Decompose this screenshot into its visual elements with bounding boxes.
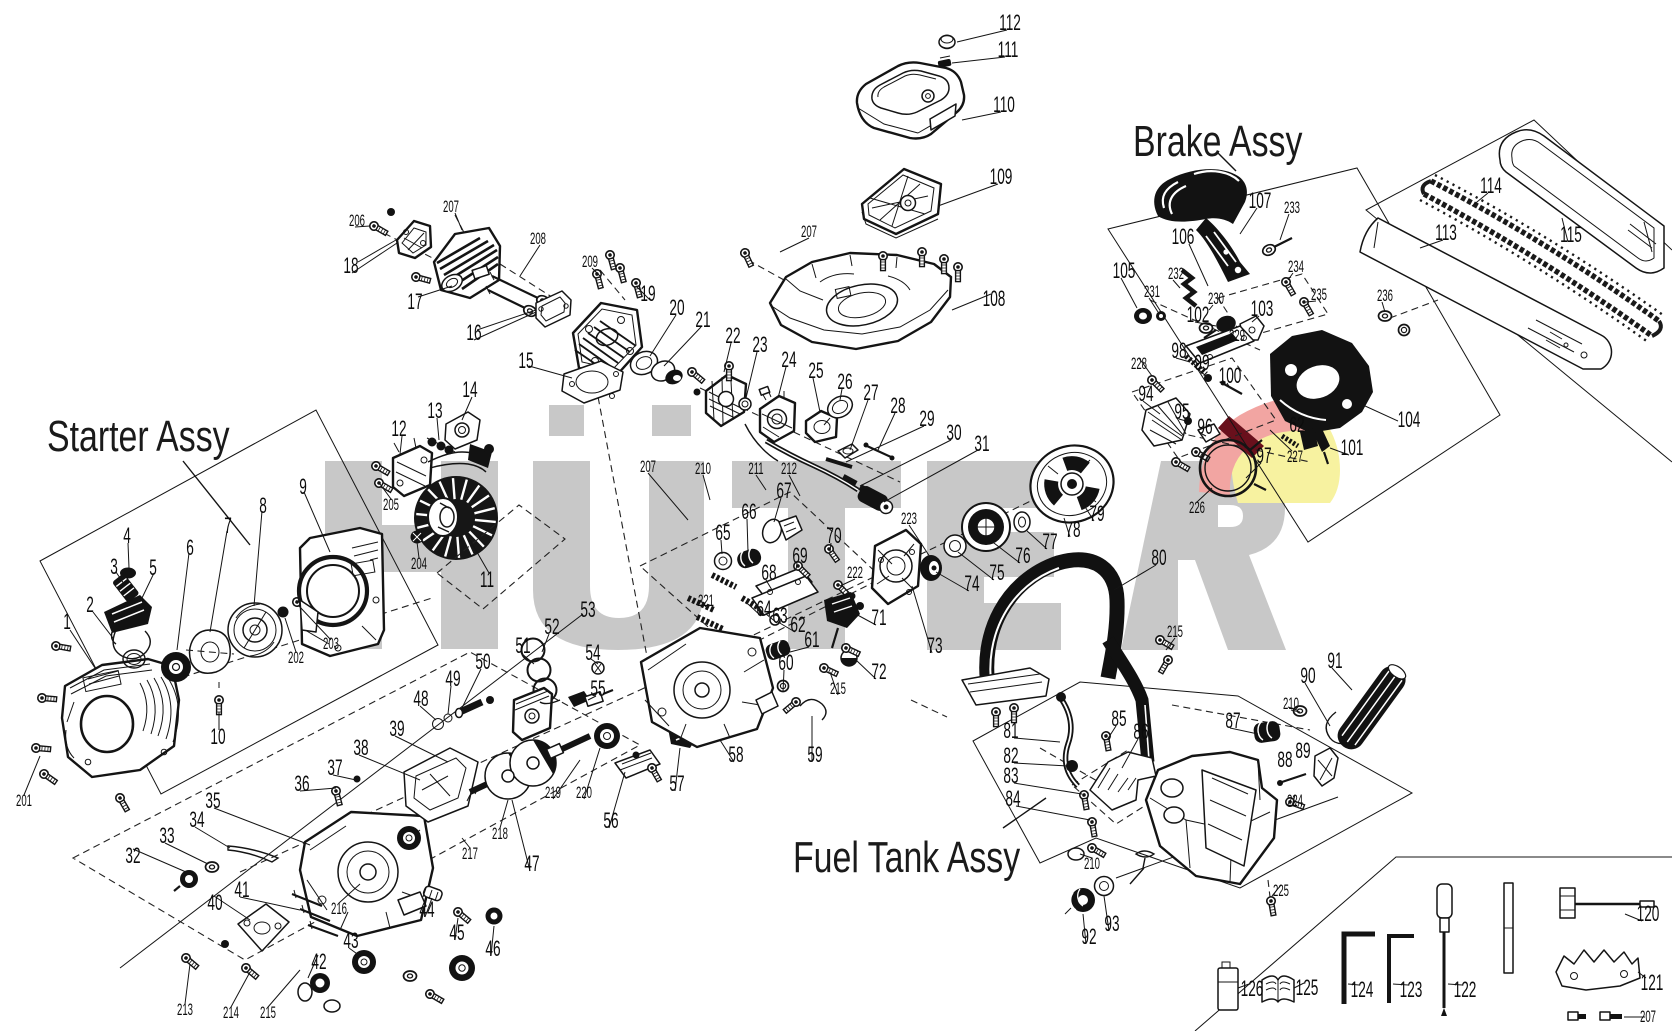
svg-text:23: 23 [752, 332, 767, 357]
svg-text:13: 13 [427, 398, 442, 423]
svg-text:75: 75 [989, 560, 1004, 585]
svg-text:91: 91 [1327, 648, 1342, 673]
svg-text:33: 33 [159, 823, 174, 848]
svg-text:10: 10 [210, 724, 225, 749]
svg-text:14: 14 [462, 377, 477, 402]
svg-text:215: 215 [830, 679, 846, 697]
svg-text:210: 210 [1283, 694, 1299, 712]
svg-text:76: 76 [1015, 543, 1030, 568]
svg-text:28: 28 [890, 393, 905, 418]
svg-text:84: 84 [1005, 786, 1020, 811]
svg-text:8: 8 [259, 493, 267, 518]
svg-text:93: 93 [1104, 911, 1119, 936]
svg-text:4: 4 [123, 523, 131, 548]
svg-text:27: 27 [863, 380, 878, 405]
svg-text:83: 83 [1003, 763, 1018, 788]
svg-text:126: 126 [1241, 976, 1264, 1001]
svg-text:68: 68 [761, 560, 776, 585]
svg-text:122: 122 [1454, 977, 1477, 1002]
svg-text:9: 9 [299, 474, 307, 499]
svg-text:212: 212 [781, 459, 797, 477]
svg-text:21: 21 [695, 307, 710, 332]
svg-text:80: 80 [1151, 545, 1166, 570]
svg-text:106: 106 [1172, 224, 1195, 249]
svg-text:63: 63 [772, 603, 787, 628]
svg-text:5: 5 [149, 555, 157, 580]
svg-text:124: 124 [1351, 977, 1374, 1002]
svg-text:43: 43 [343, 928, 358, 953]
svg-text:54: 54 [585, 640, 600, 665]
svg-text:56: 56 [603, 808, 618, 833]
svg-text:48: 48 [413, 686, 428, 711]
svg-text:214: 214 [223, 1003, 239, 1021]
svg-text:236: 236 [1377, 286, 1393, 304]
svg-text:112: 112 [999, 10, 1021, 35]
svg-text:104: 104 [1398, 407, 1421, 432]
svg-text:207: 207 [1640, 1007, 1656, 1025]
svg-text:35: 35 [205, 788, 220, 813]
svg-text:85: 85 [1111, 706, 1126, 731]
svg-text:121: 121 [1641, 970, 1664, 995]
svg-text:209: 209 [582, 252, 598, 270]
svg-text:20: 20 [669, 295, 684, 320]
svg-text:7: 7 [224, 513, 232, 538]
svg-text:235: 235 [1311, 285, 1327, 303]
svg-text:98: 98 [1171, 338, 1186, 363]
svg-text:107: 107 [1249, 188, 1272, 213]
svg-text:39: 39 [389, 716, 404, 741]
svg-text:232: 232 [1168, 264, 1184, 282]
svg-text:2: 2 [86, 592, 94, 617]
svg-text:206: 206 [349, 211, 365, 229]
svg-text:74: 74 [964, 571, 979, 596]
svg-text:203: 203 [323, 634, 339, 652]
svg-text:105: 105 [1113, 258, 1136, 283]
svg-text:18: 18 [343, 253, 358, 278]
svg-text:Fuel Tank Assy: Fuel Tank Assy [793, 833, 1020, 882]
svg-text:224: 224 [1287, 791, 1303, 809]
svg-text:36: 36 [294, 771, 309, 796]
svg-text:113: 113 [1435, 220, 1457, 245]
svg-text:47: 47 [524, 851, 539, 876]
svg-text:208: 208 [530, 229, 546, 247]
svg-text:207: 207 [640, 457, 656, 475]
svg-text:202: 202 [288, 648, 304, 666]
svg-text:22: 22 [725, 323, 740, 348]
svg-text:204: 204 [411, 554, 427, 572]
svg-text:225: 225 [1273, 881, 1289, 899]
svg-text:229: 229 [1229, 326, 1245, 344]
svg-text:97: 97 [1256, 443, 1271, 468]
svg-text:111: 111 [998, 37, 1019, 62]
svg-text:79: 79 [1089, 501, 1104, 526]
svg-text:94: 94 [1138, 381, 1153, 406]
svg-text:87: 87 [1225, 708, 1240, 733]
svg-text:115: 115 [1560, 222, 1582, 247]
svg-text:45: 45 [449, 920, 464, 945]
svg-text:207: 207 [801, 222, 817, 240]
svg-text:12: 12 [391, 416, 406, 441]
svg-text:81: 81 [1003, 718, 1018, 743]
svg-text:66: 66 [741, 499, 756, 524]
svg-text:3: 3 [110, 554, 118, 579]
svg-text:90: 90 [1300, 663, 1315, 688]
svg-text:219: 219 [545, 783, 561, 801]
svg-text:50: 50 [475, 649, 490, 674]
svg-text:59: 59 [807, 742, 822, 767]
svg-text:31: 31 [974, 431, 989, 456]
svg-text:100: 100 [1219, 363, 1242, 388]
svg-text:51: 51 [515, 633, 530, 658]
svg-text:217: 217 [462, 844, 478, 862]
svg-text:218: 218 [492, 824, 508, 842]
svg-text:34: 34 [189, 807, 204, 832]
svg-text:228: 228 [1131, 354, 1147, 372]
svg-text:73: 73 [927, 633, 942, 658]
svg-text:29: 29 [919, 406, 934, 431]
svg-text:70: 70 [826, 523, 841, 548]
svg-text:77: 77 [1042, 529, 1057, 554]
svg-text:233: 233 [1284, 198, 1300, 216]
svg-text:17: 17 [407, 289, 422, 314]
svg-text:227: 227 [1287, 447, 1303, 465]
svg-text:125: 125 [1296, 975, 1319, 1000]
svg-text:16: 16 [466, 320, 481, 345]
svg-text:99: 99 [1194, 350, 1209, 375]
svg-text:42: 42 [311, 949, 326, 974]
svg-text:230: 230 [1208, 289, 1224, 307]
svg-text:89: 89 [1295, 738, 1310, 763]
svg-text:38: 38 [353, 735, 368, 760]
svg-text:Starter Assy: Starter Assy [47, 412, 230, 461]
svg-text:64: 64 [756, 596, 771, 621]
svg-text:102: 102 [1187, 302, 1210, 327]
svg-text:223: 223 [901, 509, 917, 527]
svg-text:52: 52 [544, 614, 559, 639]
svg-text:37: 37 [327, 755, 342, 780]
svg-text:26: 26 [837, 369, 852, 394]
svg-text:215: 215 [1167, 622, 1183, 640]
svg-text:86: 86 [1133, 719, 1148, 744]
svg-text:11: 11 [480, 567, 494, 592]
svg-text:215: 215 [260, 1003, 276, 1021]
svg-text:1: 1 [63, 609, 71, 634]
svg-text:210: 210 [1084, 854, 1100, 872]
svg-text:101: 101 [1341, 435, 1364, 460]
svg-text:201: 201 [16, 791, 32, 809]
svg-text:69: 69 [792, 543, 807, 568]
svg-text:234: 234 [1288, 257, 1304, 275]
svg-text:67: 67 [776, 478, 791, 503]
svg-text:40: 40 [207, 890, 222, 915]
svg-text:78: 78 [1065, 517, 1080, 542]
svg-text:46: 46 [485, 936, 500, 961]
svg-text:72: 72 [871, 659, 886, 684]
svg-text:207: 207 [443, 197, 459, 215]
svg-text:44: 44 [419, 897, 434, 922]
svg-text:210: 210 [695, 459, 711, 477]
svg-text:25: 25 [808, 358, 823, 383]
svg-text:123: 123 [1400, 977, 1423, 1002]
svg-text:110: 110 [993, 92, 1015, 117]
svg-text:96: 96 [1197, 414, 1212, 439]
svg-text:60: 60 [778, 650, 793, 675]
svg-text:58: 58 [728, 742, 743, 767]
svg-text:95: 95 [1174, 399, 1189, 424]
svg-text:49: 49 [445, 666, 460, 691]
svg-text:222: 222 [847, 563, 863, 581]
svg-text:205: 205 [383, 495, 399, 513]
svg-text:231: 231 [1144, 282, 1160, 300]
svg-text:226: 226 [1189, 498, 1205, 516]
svg-text:24: 24 [781, 347, 796, 372]
svg-text:32: 32 [125, 843, 140, 868]
svg-text:120: 120 [1637, 901, 1660, 926]
svg-text:216: 216 [331, 899, 347, 917]
svg-text:19: 19 [640, 281, 655, 306]
svg-text:53: 53 [580, 597, 595, 622]
svg-text:62: 62 [790, 612, 805, 637]
svg-text:61: 61 [804, 627, 819, 652]
svg-text:41: 41 [234, 877, 249, 902]
svg-text:213: 213 [177, 1000, 193, 1018]
svg-text:211: 211 [748, 459, 763, 477]
svg-text:6: 6 [186, 535, 194, 560]
svg-text:109: 109 [990, 164, 1013, 189]
svg-text:Brake Assy: Brake Assy [1133, 117, 1303, 166]
svg-text:15: 15 [518, 348, 533, 373]
svg-text:114: 114 [1480, 173, 1502, 198]
svg-text:108: 108 [983, 286, 1006, 311]
svg-text:221: 221 [698, 591, 714, 609]
svg-text:62: 62 [1289, 412, 1304, 437]
svg-text:71: 71 [871, 605, 886, 630]
svg-text:57: 57 [669, 771, 684, 796]
svg-text:92: 92 [1081, 924, 1096, 949]
svg-text:103: 103 [1251, 296, 1274, 321]
svg-text:88: 88 [1277, 747, 1292, 772]
svg-text:220: 220 [576, 783, 592, 801]
svg-text:65: 65 [715, 520, 730, 545]
svg-text:55: 55 [590, 676, 605, 701]
svg-text:30: 30 [946, 420, 961, 445]
